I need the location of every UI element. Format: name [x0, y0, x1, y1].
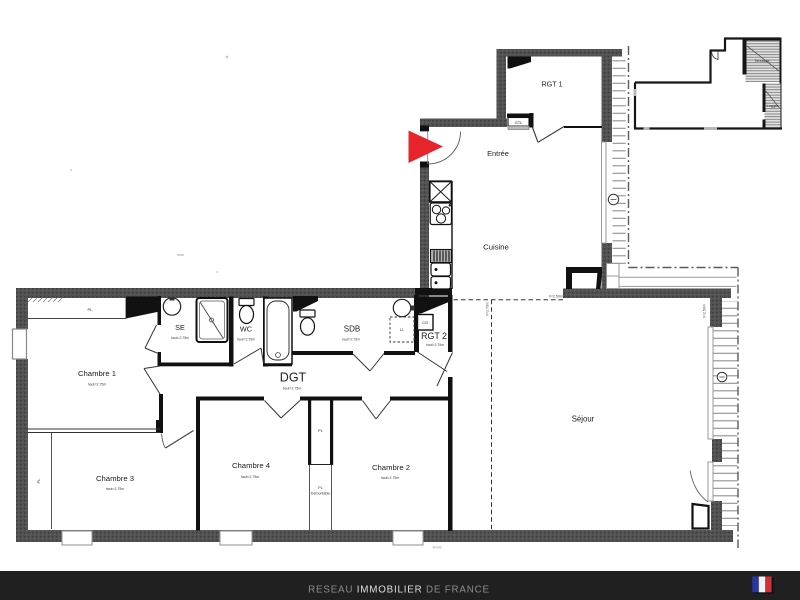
svg-text:Chambre 1: Chambre 1 [78, 369, 116, 378]
svg-text:Loggia: Loggia [766, 103, 779, 108]
svg-text:DGT: DGT [280, 371, 307, 385]
svg-text:PL: PL [318, 428, 324, 433]
svg-text:Chambre 3: Chambre 3 [96, 474, 134, 483]
svg-text:h=2.79m: h=2.79m [486, 302, 490, 316]
svg-text:haut=2.75m: haut=2.75m [241, 475, 260, 479]
svg-text:Chambre 4: Chambre 4 [232, 461, 271, 470]
svg-text:CG: CG [422, 320, 428, 325]
svg-text:h=2.50m: h=2.50m [549, 295, 563, 299]
svg-text:PL: PL [36, 478, 41, 484]
svg-text:Démontable: Démontable [311, 492, 330, 496]
svg-text:SE: SE [175, 323, 185, 332]
svg-text:haut=2.75m: haut=2.75m [342, 338, 360, 342]
svg-text:haut=2.75m: haut=2.75m [426, 343, 444, 347]
svg-text:RGT 1: RGT 1 [541, 80, 562, 89]
svg-text:haut=2.75m: haut=2.75m [106, 487, 125, 491]
svg-text:Séjour: Séjour [572, 415, 595, 424]
svg-text:haut=2.75m: haut=2.75m [171, 336, 189, 340]
svg-text:haut=2.75m: haut=2.75m [283, 387, 302, 391]
svg-text:Entrée: Entrée [487, 149, 509, 158]
svg-text:PL: PL [88, 307, 94, 312]
svg-text:WC: WC [240, 325, 252, 334]
svg-text:haut=2.75m: haut=2.75m [237, 338, 255, 342]
svg-text:RGT 2: RGT 2 [421, 331, 447, 341]
svg-text:LL: LL [400, 327, 405, 332]
svg-text:Chambre 2: Chambre 2 [372, 463, 410, 472]
svg-text:Cuisine: Cuisine [483, 243, 509, 252]
svg-text:h=2.50m: h=2.50m [703, 304, 707, 318]
svg-text:GTL: GTL [515, 120, 524, 125]
svg-text:Terrasse: Terrasse [754, 58, 770, 63]
svg-text:4m93: 4m93 [433, 546, 442, 550]
svg-text:haut=2.75m: haut=2.75m [381, 476, 400, 480]
svg-text:haut=2.75m: haut=2.75m [88, 383, 107, 387]
svg-text:PL: PL [318, 486, 322, 490]
svg-text:RESEAU IMMOBILIER DE FRANCE: RESEAU IMMOBILIER DE FRANCE [308, 585, 490, 596]
svg-text:SDB: SDB [344, 325, 360, 334]
